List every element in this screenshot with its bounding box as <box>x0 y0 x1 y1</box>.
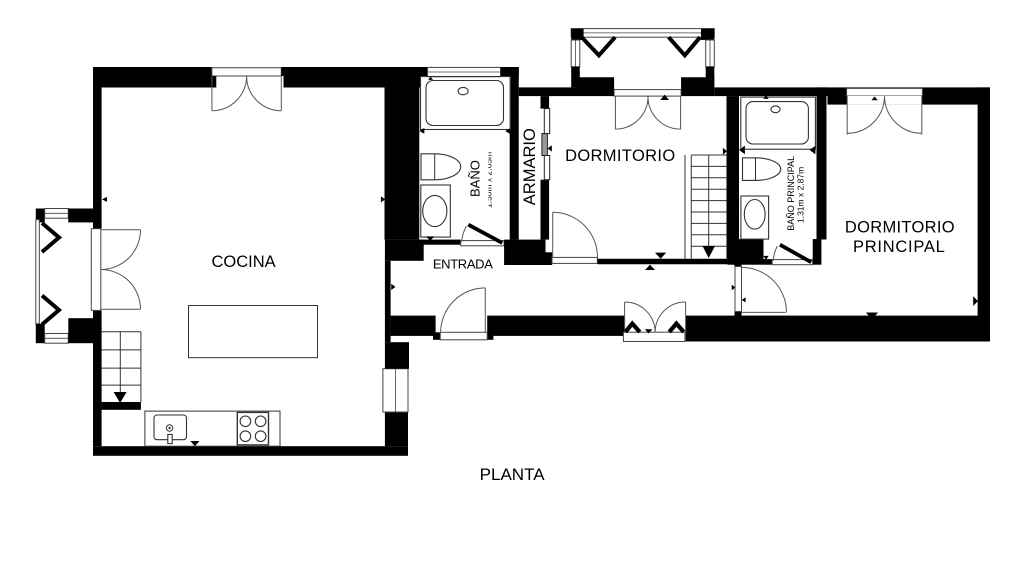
svg-text:ARMARIO: ARMARIO <box>521 128 539 205</box>
svg-text:DORMITORIO: DORMITORIO <box>845 219 955 237</box>
svg-text:COCINA: COCINA <box>212 253 276 271</box>
svg-text:ENTRADA: ENTRADA <box>433 257 493 272</box>
svg-text:PLANTA: PLANTA <box>480 465 546 484</box>
svg-text:1.31m x 2.87m: 1.31m x 2.87m <box>795 167 805 223</box>
svg-text:DORMITORIO: DORMITORIO <box>565 147 675 165</box>
svg-text:PRINCIPAL: PRINCIPAL <box>853 238 946 256</box>
svg-text:BAÑO: BAÑO <box>468 160 483 197</box>
